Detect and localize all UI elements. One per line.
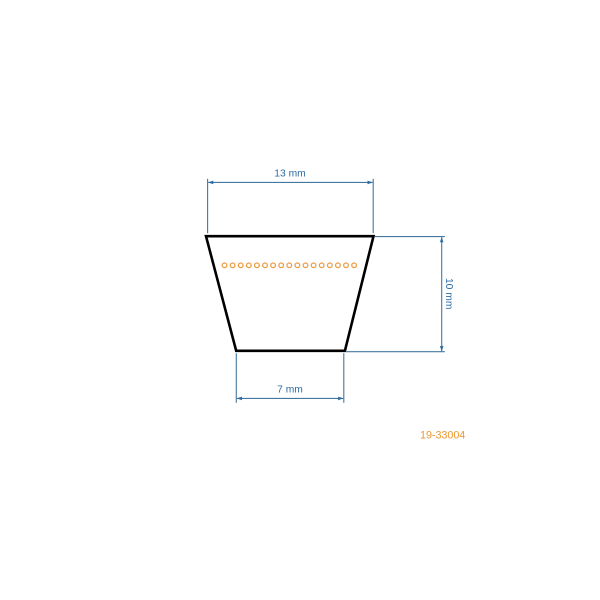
svg-text:10 mm: 10 mm [443,278,454,309]
svg-text:19-33004: 19-33004 [420,429,465,441]
svg-text:13 mm: 13 mm [274,169,305,180]
svg-text:7 mm: 7 mm [277,385,303,396]
